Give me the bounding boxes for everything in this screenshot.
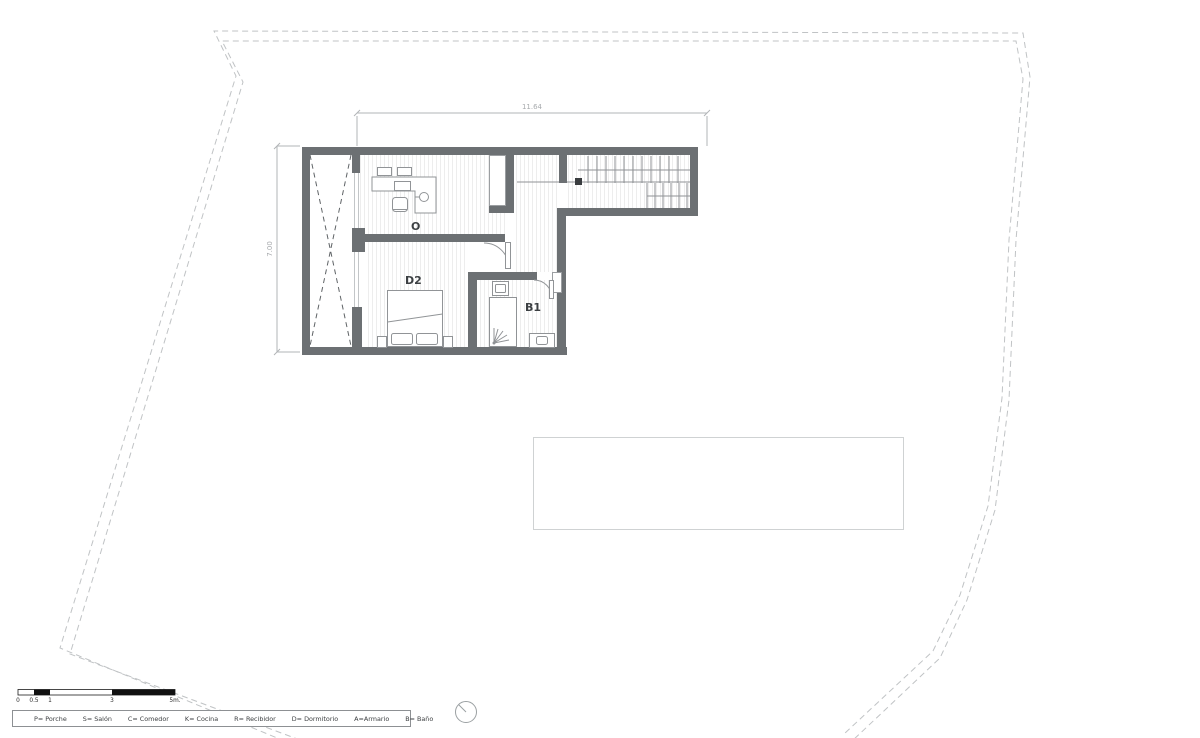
dimension-top-value: 11.64	[522, 103, 543, 111]
property-boundary	[60, 31, 1030, 738]
wardrobe	[490, 156, 506, 206]
property-boundary-outer	[60, 31, 1030, 738]
north-indicator	[456, 702, 477, 723]
wall-b1-top	[468, 272, 537, 280]
wall-bottom	[302, 347, 567, 355]
nightstand-right	[444, 337, 453, 348]
bed-pillow-2	[417, 334, 438, 345]
door-leaf-b1	[550, 281, 554, 299]
scale-label-1: 1	[48, 698, 52, 704]
legend-item-armario: A=Armario	[354, 715, 389, 723]
wall-stair-bottom	[557, 208, 698, 216]
wall-right-upper	[690, 147, 698, 216]
legend: P= Porche S= Salón C= Comedor K= Cocina …	[12, 710, 411, 727]
scale-label-5m: 5m.	[169, 698, 180, 704]
dimension-left	[274, 143, 300, 355]
desk-stool	[420, 193, 429, 202]
floor-plan-drawing: O D2 B1 11.64 7.00 0 0.5 1 3 5m.	[0, 0, 1200, 738]
nightstand-left	[378, 337, 387, 348]
room-label-office: O	[411, 220, 420, 233]
legend-item-cocina: K= Cocina	[185, 715, 218, 723]
dimension-top	[354, 110, 710, 146]
legend-item-porche: P= Porche	[34, 715, 67, 723]
scale-label-3: 3	[110, 698, 114, 704]
wall-d2-top	[365, 234, 505, 242]
bedroom-furniture	[378, 291, 453, 348]
void-cross	[310, 155, 351, 346]
toilet-bowl	[537, 337, 548, 345]
wall-office-right	[506, 155, 514, 213]
wall-office-foot	[489, 206, 506, 213]
sink-basin	[496, 285, 506, 293]
wall-void-bottom	[352, 307, 362, 347]
wall-b1-partition	[468, 272, 477, 347]
stair-newel-post	[575, 178, 582, 185]
scale-label-0: 0	[16, 698, 20, 704]
wall-void-pier	[352, 228, 365, 252]
guest-chair-1	[378, 168, 392, 176]
wall-stair-left-stub	[559, 147, 567, 183]
wall-void-top	[352, 155, 360, 173]
north-needle	[459, 705, 467, 713]
legend-item-comedor: C= Comedor	[128, 715, 169, 723]
wall-top	[302, 147, 698, 155]
dimension-left-value: 7.00	[266, 241, 274, 257]
floor-plan-page: O D2 B1 11.64 7.00 0 0.5 1 3 5m. P= Porc…	[0, 0, 1200, 738]
legend-item-bano: B= Baño	[405, 715, 433, 723]
scale-bar: 0 0.5 1 3 5m.	[16, 690, 181, 705]
pool-outline	[534, 438, 904, 530]
scale-label-05: 0.5	[29, 698, 39, 704]
room-label-b1: B1	[525, 301, 541, 314]
legend-item-dormitorio: D= Dormitorio	[292, 715, 338, 723]
room-label-d2: D2	[405, 274, 422, 287]
legend-item-recibidor: R= Recibidor	[234, 715, 276, 723]
legend-item-salon: S= Salón	[83, 715, 112, 723]
door-leaf-d2	[506, 243, 511, 269]
property-boundary-inner	[70, 41, 1023, 738]
desk-monitor	[395, 182, 411, 191]
bed-pillow-1	[392, 334, 413, 345]
guest-chair-2	[398, 168, 412, 176]
wall-left	[302, 147, 310, 355]
